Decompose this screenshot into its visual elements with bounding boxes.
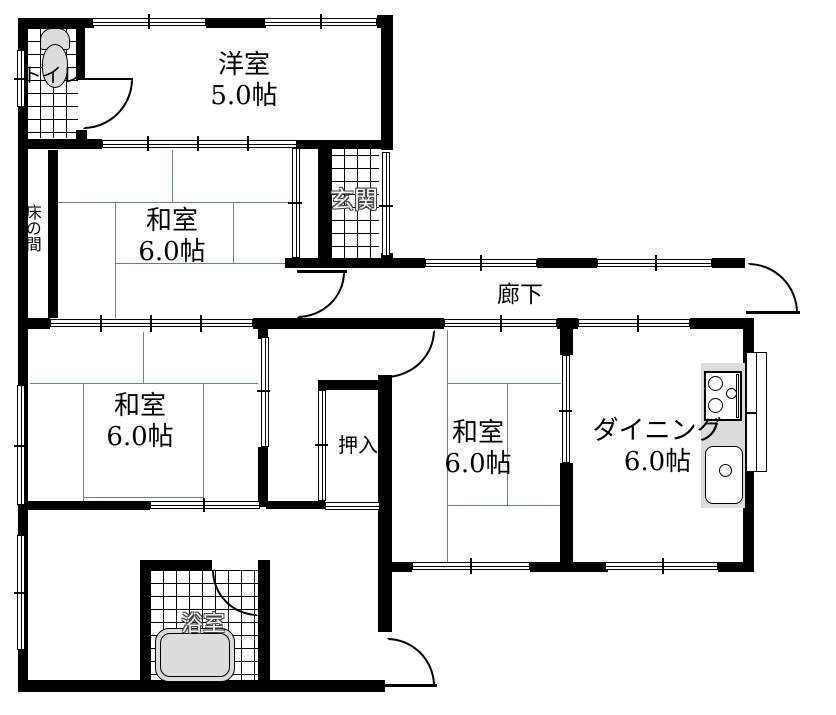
tatami-line xyxy=(172,150,173,202)
room-label-closet: 押入 xyxy=(334,434,382,458)
symbol-tick xyxy=(203,498,205,512)
room-label-toilet: トイレ xyxy=(21,64,83,88)
room-label-washitsu-lower-right: 和室 6.0帖 xyxy=(403,418,553,479)
wall-segment xyxy=(18,318,50,329)
symbol-tick xyxy=(197,136,199,151)
symbol-tick xyxy=(500,315,502,332)
room-label-corridor: 廊下 xyxy=(495,282,545,309)
wall-segment xyxy=(392,562,412,572)
symbol-tick xyxy=(257,390,270,392)
sliding-door-symbol xyxy=(261,337,269,447)
wall-segment xyxy=(560,320,573,355)
stove-burner xyxy=(708,398,723,413)
room-label-dining: ダイニング 6.0帖 xyxy=(580,416,735,477)
symbol-tick xyxy=(14,592,27,594)
sliding-door-symbol xyxy=(325,502,380,510)
wall-segment xyxy=(285,258,425,268)
opening-dashed-line xyxy=(266,507,323,509)
sliding-door-symbol xyxy=(150,501,260,509)
tatami-line xyxy=(83,497,203,498)
wall-segment xyxy=(28,501,150,510)
wall-segment xyxy=(690,318,745,329)
symbol-tick xyxy=(655,255,657,271)
sliding-door-symbol xyxy=(102,140,297,148)
symbol-tick xyxy=(100,315,102,332)
wall-segment xyxy=(530,562,608,572)
wall-segment xyxy=(297,140,384,149)
wall-segment xyxy=(206,18,266,28)
wall-segment xyxy=(18,139,102,149)
sliding-door-symbol xyxy=(562,355,570,463)
stove-edge-bar xyxy=(736,374,739,418)
symbol-tick xyxy=(150,315,152,332)
symbol-tick xyxy=(662,558,664,574)
tatami-line xyxy=(30,383,258,384)
tatami-line xyxy=(447,383,561,384)
wall-segment xyxy=(537,258,597,268)
door-swing-arc xyxy=(387,638,435,686)
bathtub-inner-rim xyxy=(160,633,230,677)
symbol-tick xyxy=(559,410,572,412)
wall-segment xyxy=(712,258,745,268)
symbol-tick xyxy=(470,558,472,574)
room-label-tokonoma: 床の間 xyxy=(23,192,40,264)
entrance-door-symbol xyxy=(382,152,390,256)
symbol-tick xyxy=(637,315,639,332)
room-label-entrance: 玄関 xyxy=(326,186,382,214)
wall-segment xyxy=(48,150,58,318)
symbol-tick xyxy=(480,255,482,271)
wall-segment xyxy=(560,463,573,568)
wall-segment xyxy=(150,560,212,570)
room-label-western: 洋室 5.0帖 xyxy=(168,50,320,111)
tatami-line xyxy=(58,202,293,203)
door-swing-arc xyxy=(385,330,435,378)
door-swing-arc xyxy=(748,263,798,313)
symbol-tick xyxy=(247,136,249,151)
stove-burner xyxy=(708,376,723,391)
wall-segment xyxy=(718,562,754,572)
symbol-tick xyxy=(320,14,322,29)
symbol-tick xyxy=(288,202,302,204)
tatami-line xyxy=(143,332,144,383)
symbol-tick xyxy=(148,14,150,29)
wall-segment xyxy=(258,560,270,682)
symbol-tick xyxy=(14,445,28,447)
symbol-tick xyxy=(147,136,149,151)
wall-segment xyxy=(253,318,444,329)
symbol-tick xyxy=(315,444,328,446)
symbol-tick xyxy=(744,412,756,414)
sliding-door-symbol xyxy=(578,319,690,327)
door-swing-arc xyxy=(83,79,133,129)
room-label-bathroom: 浴室 xyxy=(178,612,228,638)
wall-segment xyxy=(378,375,392,632)
room-label-washitsu-lower-left: 和室 6.0帖 xyxy=(65,391,215,452)
floor-plan: トイレ 洋室 5.0帖 玄関 床の間 和室 6.0帖 廊下 和室 6.0帖 押入… xyxy=(0,0,836,715)
wall-segment xyxy=(258,447,268,507)
wall-segment xyxy=(381,15,393,150)
tatami-line xyxy=(447,505,561,506)
wall-segment xyxy=(140,560,150,682)
symbol-tick xyxy=(200,315,202,332)
door-swing-arc xyxy=(297,272,345,318)
wall-segment xyxy=(318,380,384,390)
room-label-washitsu-upper: 和室 6.0帖 xyxy=(97,206,247,267)
